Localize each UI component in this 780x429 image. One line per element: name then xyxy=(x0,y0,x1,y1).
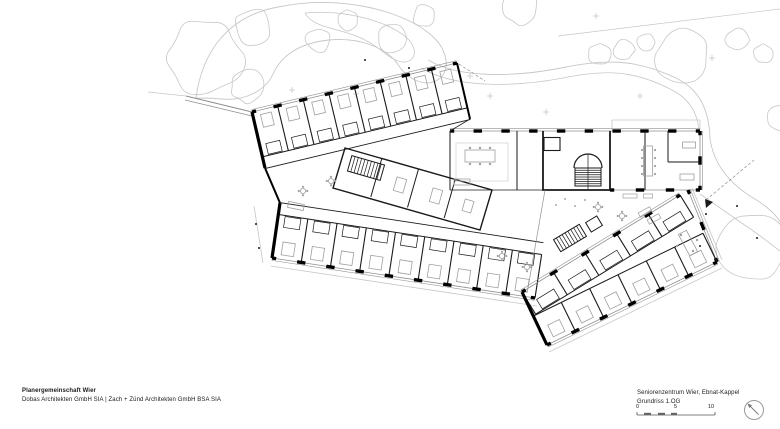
dot xyxy=(654,149,656,151)
chair-dot xyxy=(621,211,623,213)
plan-line xyxy=(688,190,690,194)
plan-line xyxy=(618,275,632,304)
plan-line xyxy=(676,195,680,197)
bed-icon xyxy=(398,260,412,275)
chair-dot xyxy=(617,215,619,217)
stair-part xyxy=(568,231,575,243)
bed-icon xyxy=(310,246,324,261)
shrub-icon xyxy=(487,93,493,99)
shrub-icon xyxy=(467,73,473,79)
furniture xyxy=(623,194,637,198)
bathroom xyxy=(371,230,388,243)
stair-part xyxy=(576,226,583,238)
plan-line xyxy=(280,203,543,243)
chair-dot xyxy=(505,255,507,257)
plan-line xyxy=(585,253,599,275)
chair-dot xyxy=(522,266,524,268)
bathroom xyxy=(631,231,654,251)
shrub-icon xyxy=(709,55,715,61)
plan-line xyxy=(301,219,308,263)
dot xyxy=(469,147,471,149)
plan-line xyxy=(272,258,535,298)
chair-dot xyxy=(334,180,336,182)
dot xyxy=(654,157,656,159)
dot xyxy=(489,163,491,165)
plan-line xyxy=(326,266,334,267)
tree-icon xyxy=(338,10,357,31)
tree-icon xyxy=(655,28,707,83)
stair-part xyxy=(574,228,581,240)
bathroom xyxy=(459,243,476,256)
plan-line xyxy=(472,288,480,289)
chair-dot xyxy=(526,270,528,272)
bed-icon xyxy=(260,112,274,127)
plan-path xyxy=(148,92,186,96)
dot xyxy=(641,157,643,159)
chair-dot xyxy=(298,190,300,192)
dot xyxy=(641,165,643,167)
plan-line xyxy=(690,189,719,261)
floor-plan-page: Planergemeinschaft Wier Dobas Architekte… xyxy=(0,0,780,429)
plan-path xyxy=(459,64,485,81)
chair-dot xyxy=(597,202,599,204)
bed-icon xyxy=(337,94,351,109)
plan-line xyxy=(617,234,631,256)
scale-bar-icon xyxy=(636,410,718,418)
plan-line xyxy=(252,111,256,112)
plan-line xyxy=(385,275,393,276)
tree-icon xyxy=(725,28,749,50)
chair-dot xyxy=(530,266,532,268)
plan-line xyxy=(299,99,307,101)
plan-line xyxy=(590,289,604,318)
shrub-icon xyxy=(289,87,295,93)
shrub-icon xyxy=(593,13,599,19)
plan-line xyxy=(522,195,680,292)
chair-dot xyxy=(326,180,328,182)
chair-dot xyxy=(601,206,603,208)
tree-icon xyxy=(502,0,536,26)
plan-line xyxy=(414,280,422,281)
chair-dot xyxy=(625,215,627,217)
dot xyxy=(654,173,656,175)
bed-icon xyxy=(281,242,295,257)
stair-icon xyxy=(554,224,587,251)
dot xyxy=(408,67,410,69)
tree-icon xyxy=(589,44,611,64)
tree-icon xyxy=(637,34,655,51)
north-arrow-icon xyxy=(742,398,766,422)
bed-icon xyxy=(456,269,470,284)
tree-icon xyxy=(754,44,773,63)
table-icon xyxy=(619,213,624,218)
stair-part xyxy=(554,224,587,251)
dot xyxy=(736,205,738,207)
dot xyxy=(676,245,678,247)
chair-dot xyxy=(621,219,623,221)
dot xyxy=(584,199,586,201)
furniture xyxy=(393,177,406,193)
dot xyxy=(641,173,643,175)
plan-line xyxy=(297,262,305,263)
chair-dot xyxy=(330,176,332,178)
plan-line xyxy=(274,105,282,107)
tree-icon xyxy=(166,21,245,94)
plan-line xyxy=(272,258,276,259)
plan-path xyxy=(196,2,446,99)
furniture xyxy=(680,174,694,180)
plan-line xyxy=(427,68,435,70)
bathroom xyxy=(400,234,417,247)
bathroom xyxy=(313,221,330,234)
chair-dot xyxy=(501,259,503,261)
dot xyxy=(469,163,471,165)
plan-line xyxy=(675,247,689,276)
plan-line xyxy=(561,302,575,331)
plan-line xyxy=(325,93,333,95)
plan-path xyxy=(271,266,537,306)
table-icon xyxy=(524,264,529,269)
plan-path xyxy=(710,138,780,222)
chair-dot xyxy=(302,194,304,196)
plan-line xyxy=(360,228,367,272)
tree-icon xyxy=(379,25,407,53)
plan-path xyxy=(528,190,545,288)
stair-part xyxy=(571,229,578,241)
plan-line xyxy=(554,273,568,295)
bed-icon xyxy=(389,81,403,96)
bed-icon xyxy=(286,106,300,121)
stair-part xyxy=(370,162,374,177)
stair-part xyxy=(357,158,361,173)
stair-part xyxy=(562,235,569,247)
dot xyxy=(479,147,481,149)
tree-icon xyxy=(413,5,434,26)
plan-path xyxy=(265,168,280,203)
shrub-icon xyxy=(543,109,549,115)
dot xyxy=(479,163,481,165)
plan-path xyxy=(185,100,252,116)
bed-icon xyxy=(576,306,593,323)
bathroom xyxy=(430,239,447,252)
plan-line xyxy=(522,290,526,292)
plan-path xyxy=(450,119,470,131)
plan-path xyxy=(254,206,263,263)
plan-line xyxy=(263,108,468,157)
furniture xyxy=(586,216,603,232)
chair-dot xyxy=(306,190,308,192)
bathroom xyxy=(284,217,301,230)
plan-path xyxy=(408,169,419,208)
bed-icon xyxy=(486,273,500,288)
bed-icon xyxy=(548,320,565,337)
furniture xyxy=(462,199,474,213)
furniture xyxy=(429,188,442,204)
dot xyxy=(680,234,682,236)
dot xyxy=(699,245,701,247)
plan-line xyxy=(531,297,535,298)
furniture xyxy=(683,142,696,148)
bed-icon xyxy=(340,251,354,266)
dot xyxy=(705,213,707,215)
bed-icon xyxy=(312,100,326,115)
dot xyxy=(574,205,576,207)
stair-part xyxy=(374,163,378,178)
stair-part xyxy=(354,157,358,172)
bed-icon xyxy=(661,264,678,281)
plan-line xyxy=(418,237,425,281)
plan-line xyxy=(279,214,542,254)
bed-icon xyxy=(604,292,621,309)
firm-name: Planergemeinschaft Wier xyxy=(22,387,96,395)
bathroom xyxy=(342,225,359,238)
dot xyxy=(641,149,643,151)
plan-line xyxy=(356,271,364,272)
bed-icon xyxy=(363,88,377,103)
stair-part xyxy=(367,161,371,176)
shrub-icon xyxy=(637,93,643,99)
table-icon xyxy=(300,188,305,193)
plan-line xyxy=(477,246,484,290)
plan-line xyxy=(251,61,456,110)
firm-name-text: Planergemeinschaft Wier xyxy=(22,388,96,394)
dot xyxy=(756,237,758,239)
plan-path xyxy=(457,63,470,119)
plan-line xyxy=(646,261,660,290)
chair-dot xyxy=(501,251,503,253)
plan-path xyxy=(549,268,722,352)
dot xyxy=(555,204,557,206)
tree-icon xyxy=(305,29,330,52)
plan-line xyxy=(330,223,337,267)
stair-part xyxy=(559,236,566,248)
plan-line xyxy=(389,232,396,276)
plan-line xyxy=(272,260,535,300)
tree-icon xyxy=(716,215,780,279)
chair-dot xyxy=(526,262,528,264)
chair-dot xyxy=(593,206,595,208)
floor-plan-svg xyxy=(0,0,780,429)
furniture xyxy=(465,150,495,162)
bathroom xyxy=(488,248,505,261)
table-icon xyxy=(328,178,333,183)
bathroom xyxy=(568,270,591,290)
dot xyxy=(692,250,694,252)
stair-part xyxy=(361,159,365,174)
plan-line xyxy=(376,80,384,82)
bed-icon xyxy=(633,278,650,295)
tree-icon xyxy=(768,105,780,131)
plan-path xyxy=(558,9,780,36)
plan-line xyxy=(402,74,410,76)
plan-line xyxy=(447,241,454,285)
plan-line xyxy=(521,193,679,290)
stair-part xyxy=(565,233,572,245)
dot xyxy=(489,147,491,149)
bed-icon xyxy=(369,255,383,270)
plan-line xyxy=(535,254,542,298)
dot xyxy=(258,247,260,249)
chair-dot xyxy=(497,255,499,257)
plan-line xyxy=(713,262,717,264)
stair-part xyxy=(556,238,563,250)
dot xyxy=(255,223,257,225)
dot xyxy=(564,198,566,200)
table-icon xyxy=(499,253,504,258)
plan-path xyxy=(421,68,700,140)
furniture xyxy=(644,194,653,198)
dot xyxy=(696,239,698,241)
plan-line xyxy=(502,293,510,294)
firm-members: Dobas Architekten GmbH SIA | Zach + Zünd… xyxy=(22,396,221,404)
plan-line xyxy=(701,222,704,230)
plan-line xyxy=(350,87,358,89)
furniture xyxy=(544,138,560,151)
dot xyxy=(364,59,366,61)
chair-dot xyxy=(330,184,332,186)
bed-icon xyxy=(427,264,441,279)
bathroom xyxy=(663,211,686,231)
plan-line xyxy=(443,284,451,285)
plan-path xyxy=(272,203,280,258)
dot xyxy=(654,165,656,167)
project-name: Seniorenzentrum Wier, Ebnat-Kappel xyxy=(637,389,739,397)
plan-path xyxy=(522,292,547,345)
bathroom xyxy=(537,289,560,309)
plan-path xyxy=(252,112,265,168)
bed-icon xyxy=(689,250,706,267)
table-icon xyxy=(595,204,600,209)
stair-part xyxy=(364,160,368,175)
chair-dot xyxy=(597,210,599,212)
plan-path xyxy=(305,12,414,62)
chair-dot xyxy=(302,186,304,188)
tree-icon xyxy=(613,39,635,59)
bathroom xyxy=(600,250,623,270)
plan-path xyxy=(428,60,710,138)
